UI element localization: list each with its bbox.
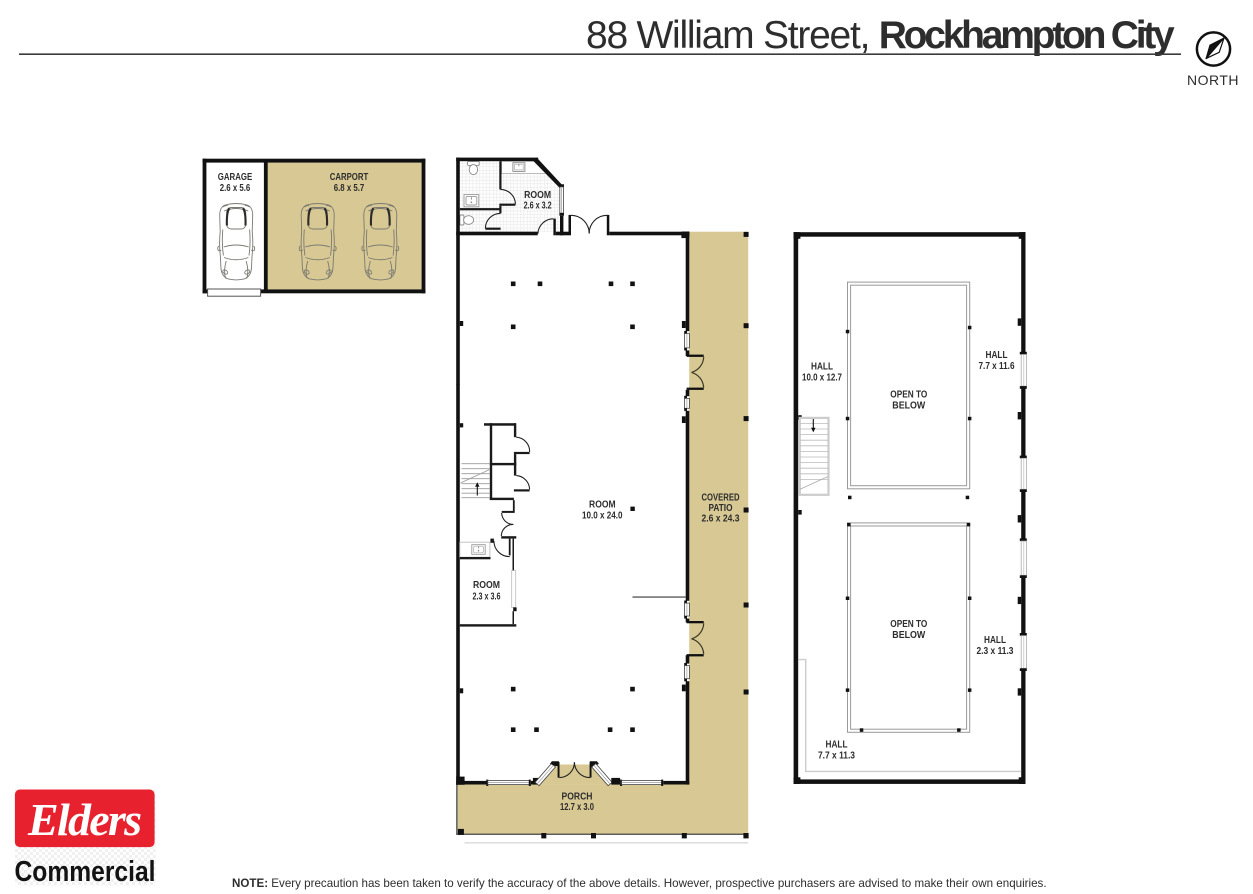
svg-text:Elders: Elders [27, 794, 142, 845]
svg-text:NORTH: NORTH [1187, 72, 1239, 88]
svg-text:2.3 x 11.3: 2.3 x 11.3 [977, 646, 1014, 657]
svg-text:NOTE: Every precaution has bee: NOTE: Every precaution has been taken to… [232, 877, 1047, 890]
svg-text:BELOW: BELOW [892, 401, 925, 412]
svg-text:BELOW: BELOW [892, 630, 925, 641]
svg-text:7.7 x 11.3: 7.7 x 11.3 [818, 751, 855, 762]
svg-text:OPEN TO: OPEN TO [890, 390, 927, 401]
svg-text:Commercial: Commercial [15, 856, 156, 888]
svg-text:HALL: HALL [811, 362, 833, 373]
svg-text:2.3 x 3.6: 2.3 x 3.6 [473, 592, 501, 603]
svg-text:88 William Street, Rockhampton: 88 William Street, Rockhampton City [586, 14, 1175, 57]
svg-text:HALL: HALL [826, 740, 848, 751]
svg-text:ROOM: ROOM [524, 190, 551, 201]
svg-text:2.6 x 3.2: 2.6 x 3.2 [524, 201, 552, 212]
svg-text:GARAGE: GARAGE [218, 172, 253, 183]
svg-text:10.0 x 24.0: 10.0 x 24.0 [582, 511, 623, 522]
svg-text:ROOM: ROOM [473, 580, 500, 591]
svg-text:HALL: HALL [986, 350, 1008, 361]
svg-text:12.7 x 3.0: 12.7 x 3.0 [560, 802, 594, 813]
svg-text:2.6 x 24.3: 2.6 x 24.3 [702, 514, 740, 525]
svg-text:6.8 x 5.7: 6.8 x 5.7 [334, 183, 365, 194]
svg-text:10.0 x 12.7: 10.0 x 12.7 [802, 373, 842, 384]
svg-text:PORCH: PORCH [562, 792, 593, 803]
svg-text:7.7 x 11.6: 7.7 x 11.6 [979, 361, 1015, 372]
svg-text:PATIO: PATIO [709, 503, 733, 514]
svg-text:2.6 x 5.6: 2.6 x 5.6 [220, 183, 251, 194]
svg-text:CARPORT: CARPORT [330, 172, 369, 183]
svg-text:COVERED: COVERED [702, 493, 740, 504]
svg-text:HALL: HALL [984, 635, 1006, 646]
svg-text:OPEN TO: OPEN TO [890, 619, 927, 630]
svg-text:ROOM: ROOM [589, 500, 616, 511]
